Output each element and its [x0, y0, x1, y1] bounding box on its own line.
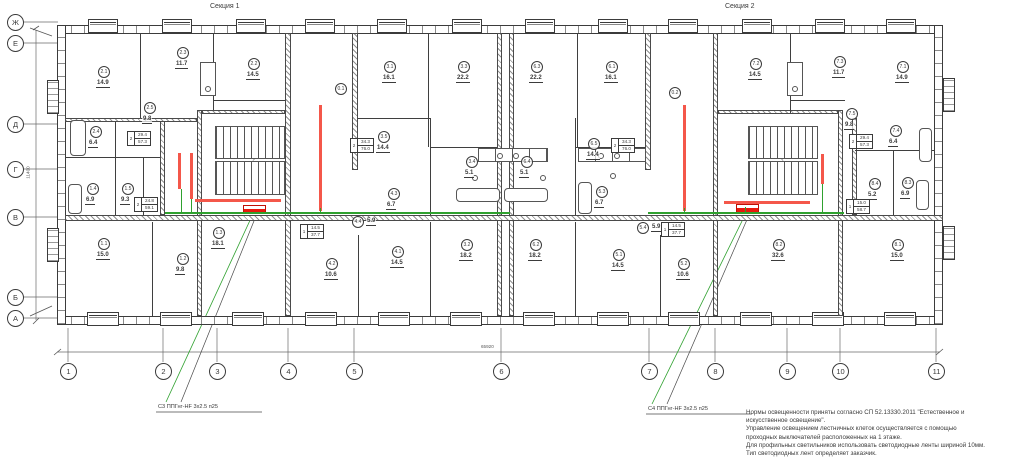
- sink-icon: [614, 153, 620, 159]
- wall-protrusion: [943, 78, 955, 112]
- line: [30, 28, 52, 36]
- room-number: 1.1: [98, 238, 110, 250]
- room-number: 7.3: [834, 56, 846, 68]
- staircase-flight: [748, 161, 818, 195]
- wall: [509, 33, 514, 316]
- window: [597, 312, 629, 326]
- line: [936, 349, 943, 355]
- apartment-rooms-count: 2: [351, 139, 358, 152]
- staircase-flight: [215, 126, 285, 159]
- apartment-total-area: 76.0: [619, 146, 634, 152]
- apartment-living-area: 14.5: [308, 225, 323, 232]
- room-area: 32.6: [771, 253, 785, 261]
- room-area: 10.6: [324, 272, 338, 280]
- bathtub: [578, 182, 592, 214]
- window: [523, 312, 555, 326]
- room-number: 3.4: [466, 156, 478, 168]
- apartment-total-area: 37.7: [308, 232, 323, 238]
- wall: [497, 33, 502, 316]
- sink-icon: [513, 153, 519, 159]
- axis-bubble-left: Б: [7, 289, 24, 306]
- window: [598, 19, 628, 33]
- window: [236, 19, 266, 33]
- wall: [115, 122, 116, 215]
- room-number: 7.1: [897, 61, 909, 73]
- wall: [140, 33, 141, 118]
- floor-plan-drawing: Секция 1 Секция 2 65920 11400 Нормы осве…: [0, 0, 1024, 467]
- wall: [358, 235, 359, 316]
- apartment-rooms-count: 1: [847, 200, 854, 213]
- led-strip: [319, 105, 322, 211]
- led-strip: [821, 154, 824, 184]
- wall-protrusion: [943, 226, 955, 260]
- axis-bubble-bottom: 10: [832, 363, 849, 380]
- wall: [358, 118, 430, 119]
- room-area: 18.2: [528, 253, 542, 261]
- room-area: 14.4: [376, 145, 390, 153]
- room-area: 18.1: [211, 241, 225, 249]
- window: [452, 19, 482, 33]
- bathtub: [456, 188, 500, 202]
- room-area: 14.5: [748, 72, 762, 80]
- room-area: 6.7: [594, 200, 604, 208]
- wall: [430, 222, 431, 316]
- room-area: 10.6: [676, 272, 690, 280]
- bathtub: [70, 120, 86, 156]
- window: [450, 312, 482, 326]
- room-area: 5.9: [366, 218, 376, 226]
- section-2-title: Секция 2: [725, 3, 755, 10]
- axis-bubble-bottom: 11: [928, 363, 945, 380]
- room-number: 4.1: [392, 246, 404, 258]
- apartment-rooms-count: 1: [301, 225, 308, 238]
- room-number: 7.2: [750, 58, 762, 70]
- room-number: 8.4: [869, 178, 881, 190]
- bathtub: [919, 128, 932, 162]
- axis-bubble-bottom: 5: [346, 363, 363, 380]
- room-number: 1.3: [213, 227, 225, 239]
- window: [884, 312, 916, 326]
- wiring-line: [822, 184, 823, 212]
- wall: [213, 100, 285, 101]
- apartment-living-area: 34.3: [619, 139, 634, 146]
- wiring-line: [684, 208, 685, 213]
- window: [886, 19, 916, 33]
- window: [232, 312, 264, 326]
- wall: [577, 33, 578, 147]
- room-area: 14.9: [96, 80, 110, 88]
- apartment-rooms-count: 1: [662, 223, 669, 236]
- room-number: 1.2: [177, 253, 189, 265]
- apartment-living-area: 14.5: [669, 223, 684, 230]
- window: [305, 19, 335, 33]
- room-number: 5.1: [613, 249, 625, 261]
- axis-bubble-left: В: [7, 209, 24, 226]
- room-number: 2.1: [98, 66, 110, 78]
- line: [30, 306, 52, 316]
- apartment-rooms-count: 2: [612, 139, 619, 152]
- axis-bubble-bottom: 2: [155, 363, 172, 380]
- room-area: 9.8: [142, 116, 152, 124]
- apartment-living-area: 29.4: [135, 132, 150, 139]
- apartment-tag: 114.537.7: [661, 222, 685, 237]
- axis-bubble-left: Ж: [7, 14, 24, 31]
- apartment-tag: 229.457.3: [849, 134, 873, 149]
- wall: [893, 150, 894, 215]
- apartment-total-area: 57.3: [135, 139, 150, 145]
- wall: [718, 110, 838, 114]
- staircase-flight: [748, 126, 818, 159]
- room-area: 14.5: [246, 72, 260, 80]
- bathtub: [504, 188, 548, 202]
- wiring-line: [165, 212, 510, 214]
- room-number: 5.4: [637, 222, 649, 234]
- led-strip: [190, 153, 193, 199]
- window: [377, 19, 407, 33]
- window: [305, 312, 337, 326]
- exterior-wall-west: [57, 25, 66, 325]
- wall: [790, 100, 845, 101]
- room-area: 14.4: [586, 152, 600, 160]
- room-number: 7.5: [846, 108, 858, 120]
- room-area: 9.8: [175, 267, 185, 275]
- room-number: 4.3: [388, 188, 400, 200]
- window: [815, 19, 845, 33]
- apartment-living-area: 29.4: [857, 135, 872, 142]
- room-area: 6.7: [386, 202, 396, 210]
- axis-bubble-left: А: [7, 310, 24, 327]
- line: [33, 26, 39, 30]
- wiring-line: [648, 212, 844, 214]
- window: [668, 312, 700, 326]
- window: [87, 312, 119, 326]
- room-area: 5.1: [464, 170, 474, 178]
- apartment-rooms-count: 2: [128, 132, 135, 145]
- axis-bubble-bottom: 8: [707, 363, 724, 380]
- apartment-rooms-count: 2: [850, 135, 857, 148]
- staircase-flight: [215, 161, 285, 195]
- line: [33, 318, 39, 324]
- axis-bubble-bottom: 1: [60, 363, 77, 380]
- apartment-tag: 234.376.0: [611, 138, 635, 153]
- room-area: 16.1: [382, 75, 396, 83]
- led-strip: [178, 153, 181, 189]
- room-number: 3.3: [458, 61, 470, 73]
- room-number: 2.4: [90, 126, 102, 138]
- room-number: 8.1: [892, 239, 904, 251]
- room-number: 1.4: [87, 183, 99, 195]
- room-area: 14.9: [895, 75, 909, 83]
- window: [162, 19, 192, 33]
- sink-icon: [792, 86, 798, 92]
- line: [54, 349, 61, 355]
- room-number: 6.3: [531, 61, 543, 73]
- room-number: 5.2: [678, 258, 690, 270]
- wall: [65, 157, 160, 158]
- window: [740, 312, 772, 326]
- wall: [202, 110, 285, 114]
- room-number: 2.3: [177, 47, 189, 59]
- apartment-living-area: 24.8: [142, 198, 157, 205]
- window: [525, 19, 555, 33]
- room-area: 9.3: [120, 197, 130, 205]
- room-area: 16.1: [604, 75, 618, 83]
- room-number: 2.2: [248, 58, 260, 70]
- bathtub: [916, 180, 929, 210]
- room-area: 14.5: [390, 260, 404, 268]
- room-number: 0.1: [335, 83, 347, 95]
- room-number: 4.4: [352, 216, 364, 228]
- wall: [428, 33, 429, 147]
- room-number: 3.2: [461, 239, 473, 251]
- room-number: 2.5: [144, 102, 156, 114]
- sink-icon: [205, 86, 211, 92]
- room-number: 6.5: [588, 138, 600, 150]
- window: [88, 19, 118, 33]
- wall-protrusion: [47, 228, 59, 262]
- room-number: 0.2: [669, 87, 681, 99]
- window: [160, 312, 192, 326]
- led-strip: [195, 199, 281, 202]
- apartment-tag: 224.859.1: [134, 197, 158, 212]
- apartment-living-area: 34.3: [358, 139, 373, 146]
- overall-height-dimension: 11400: [26, 166, 31, 178]
- room-number: 8.3: [902, 177, 914, 189]
- room-number: 3.5: [378, 131, 390, 143]
- room-number: 1.5: [122, 183, 134, 195]
- room-number: 6.1: [606, 61, 618, 73]
- led-strip: [683, 105, 686, 211]
- wiring-line: [181, 189, 182, 212]
- room-area: 15.0: [890, 253, 904, 261]
- axis-bubble-bottom: 7: [641, 363, 658, 380]
- section-1-title: Секция 1: [210, 3, 240, 10]
- room-area: 5.1: [519, 170, 529, 178]
- room-number: 6.4: [521, 156, 533, 168]
- room-number: 5.3: [596, 186, 608, 198]
- wiring-line: [191, 199, 192, 212]
- overall-width-dimension: 65920: [481, 344, 494, 349]
- line: [652, 215, 745, 404]
- room-area: 6.9: [900, 191, 910, 199]
- cable-label: С4 ППГнг-HF 3х2.5 п25: [648, 406, 708, 412]
- apartment-total-area: 76.0: [358, 146, 373, 152]
- room-area: 6.9: [85, 197, 95, 205]
- room-area: 14.5: [611, 263, 625, 271]
- wall: [660, 235, 661, 316]
- axis-bubble-left: Г: [7, 161, 24, 178]
- apartment-total-area: 59.1: [142, 205, 157, 211]
- room-area: 11.7: [832, 70, 845, 78]
- window: [668, 19, 698, 33]
- wall: [285, 33, 291, 316]
- lighting-notes: Нормы освещенности приняты согласно СП 5…: [746, 409, 985, 458]
- room-number: 6.2: [530, 239, 542, 251]
- room-area: 22.2: [456, 75, 470, 83]
- axis-bubble-left: Е: [7, 35, 24, 52]
- room-area: 6.4: [88, 140, 98, 148]
- room-number: 4.2: [326, 258, 338, 270]
- wall: [152, 222, 153, 316]
- apartment-total-area: 58.7: [854, 207, 869, 213]
- wall: [430, 118, 431, 215]
- axis-bubble-bottom: 3: [209, 363, 226, 380]
- wiring-line: [745, 207, 746, 213]
- cable-label: С3 ППГнг-HF 3х2.5 п25: [158, 404, 218, 410]
- room-number: 8.2: [773, 239, 785, 251]
- wall: [713, 33, 718, 316]
- window: [742, 19, 772, 33]
- room-number: 3.1: [384, 61, 396, 73]
- apartment-tag: 115.058.7: [846, 199, 870, 214]
- axis-bubble-left: Д: [7, 116, 24, 133]
- bathtub: [68, 184, 82, 214]
- wiring-line: [320, 208, 321, 213]
- room-area: 5.9: [651, 224, 661, 232]
- room-area: 22.2: [529, 75, 543, 83]
- apartment-total-area: 37.7: [669, 230, 684, 236]
- apartment-living-area: 15.0: [854, 200, 869, 207]
- apartment-tag: 234.376.0: [350, 138, 374, 153]
- room-area: 11.7: [175, 61, 188, 69]
- apartment-tag: 229.457.3: [127, 131, 151, 146]
- sink-icon: [497, 153, 503, 159]
- wall: [575, 118, 576, 215]
- wall: [575, 222, 576, 316]
- room-area: 15.0: [96, 252, 110, 260]
- room-area: 9.8: [844, 122, 854, 130]
- sink-icon: [610, 173, 616, 179]
- wall: [160, 118, 165, 215]
- room-area: 18.2: [459, 253, 473, 261]
- window: [378, 312, 410, 326]
- room-area: 6.4: [888, 139, 898, 147]
- axis-bubble-bottom: 4: [280, 363, 297, 380]
- sink-icon: [540, 175, 546, 181]
- wall-protrusion: [47, 80, 59, 114]
- apartment-total-area: 57.3: [857, 142, 872, 148]
- axis-bubble-bottom: 9: [779, 363, 796, 380]
- wall: [65, 215, 943, 221]
- axis-bubble-bottom: 6: [493, 363, 510, 380]
- exterior-wall-east: [934, 25, 943, 325]
- room-number: 7.4: [890, 125, 902, 137]
- apartment-tag: 114.537.7: [300, 224, 324, 239]
- apartment-rooms-count: 2: [135, 198, 142, 211]
